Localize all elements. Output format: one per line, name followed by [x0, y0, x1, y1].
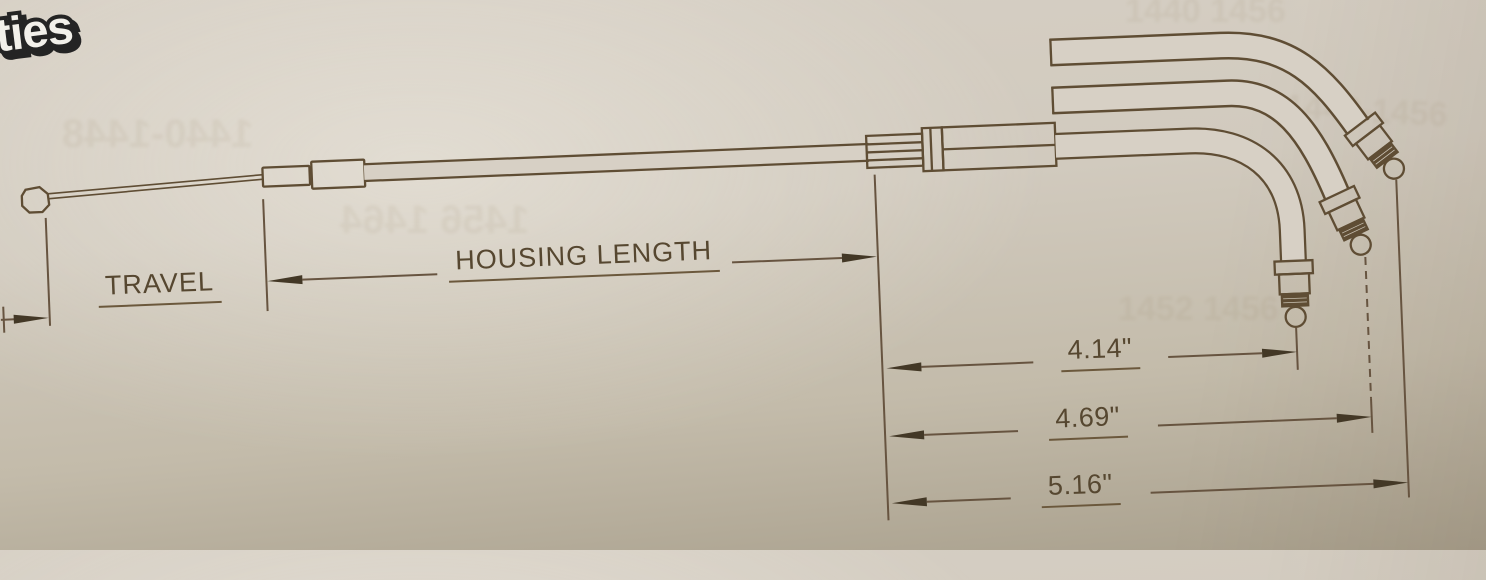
extension-line-barrel — [46, 218, 50, 326]
adjuster-body — [942, 123, 1057, 171]
extension-line-ball-3 — [1396, 180, 1409, 498]
dim-value-4-14: 4.14" — [1060, 332, 1140, 372]
logo-text: ties — [0, 0, 75, 62]
arrow-housing-left — [267, 275, 302, 285]
dim-line-5-16 — [927, 484, 1376, 502]
arrow-4-69-left — [889, 430, 924, 440]
tube-1-end-cap — [1050, 39, 1051, 66]
extension-line-ball-2-dashed — [1365, 257, 1371, 399]
arrow-4-69-right — [1337, 412, 1372, 422]
threaded-adjuster — [866, 134, 923, 168]
cable-technical-drawing: TRAVEL HOUSING LENGTH 4.14" 4.69" 5.16" — [0, 0, 1486, 580]
extension-line-ball-2 — [1371, 399, 1372, 433]
housing-ferrule-large — [311, 160, 365, 189]
arrow-travel-left — [14, 313, 49, 323]
arrow-4-14-right — [1262, 347, 1297, 357]
arrow-4-14-left — [886, 362, 921, 372]
adjuster-lock-nut — [922, 127, 944, 171]
dim-line-4-69 — [924, 418, 1337, 435]
cable-housing — [364, 152, 869, 172]
cable-barrel-end — [21, 187, 49, 213]
travel-dim-tail — [1, 319, 15, 320]
inner-wire — [47, 175, 263, 199]
dim-value-4-69: 4.69" — [1048, 401, 1128, 441]
tube-option-3 — [1056, 137, 1294, 270]
cable-linework — [0, 0, 1486, 580]
dim-value-5-16: 5.16" — [1040, 468, 1120, 508]
extension-line-housing-start — [263, 199, 267, 311]
housing-ferrule-small — [262, 166, 310, 187]
arrow-5-16-left — [892, 497, 927, 507]
travel-label: TRAVEL — [97, 266, 221, 308]
arrow-5-16-right — [1373, 478, 1408, 488]
ball-nipple-3 — [1285, 306, 1306, 327]
end-fitting-2 — [1320, 186, 1383, 262]
arrow-housing-right — [842, 252, 877, 262]
extension-line-housing-end — [875, 175, 889, 521]
tube-2-end-cap — [1052, 87, 1053, 114]
extension-line-ball-1 — [1296, 328, 1298, 370]
end-fitting-3 — [1274, 260, 1315, 327]
